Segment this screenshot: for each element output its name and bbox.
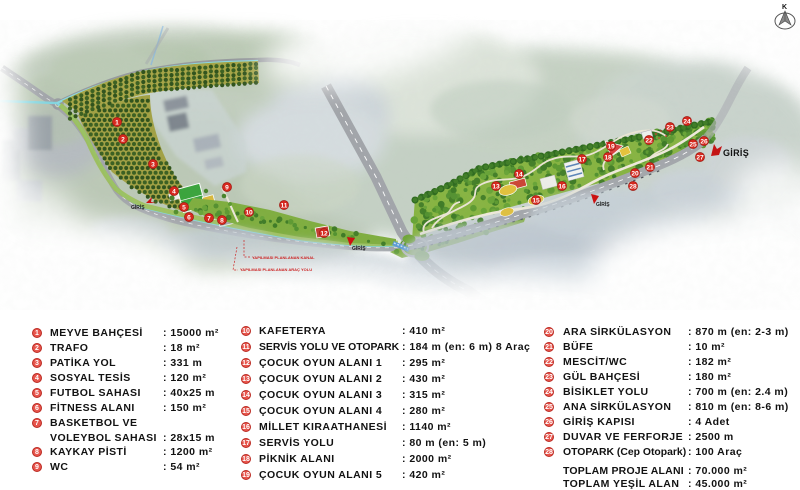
svg-text:28: 28: [629, 184, 637, 191]
svg-text:18: 18: [604, 155, 612, 162]
svg-text:15: 15: [532, 198, 540, 205]
svg-text:11: 11: [281, 203, 288, 210]
svg-text:8: 8: [220, 218, 224, 225]
svg-text:19: 19: [607, 144, 615, 151]
svg-text:10: 10: [245, 210, 253, 217]
svg-text:2: 2: [121, 137, 125, 144]
svg-text:13: 13: [492, 184, 500, 191]
svg-text:4: 4: [172, 189, 176, 196]
svg-text:3: 3: [151, 162, 155, 169]
svg-text:14: 14: [515, 172, 523, 179]
svg-text:6: 6: [187, 215, 191, 222]
svg-text:GİRİŞ: GİRİŞ: [131, 204, 145, 211]
svg-text:22: 22: [645, 138, 653, 145]
svg-text:17: 17: [578, 157, 586, 164]
svg-text:GİRİŞ: GİRİŞ: [596, 201, 610, 208]
svg-text:27: 27: [696, 155, 704, 162]
svg-text:21: 21: [646, 165, 654, 172]
svg-text:23: 23: [666, 125, 674, 132]
svg-text:GİRİŞ: GİRİŞ: [723, 148, 749, 158]
svg-text:25: 25: [689, 142, 697, 149]
svg-text:16: 16: [558, 184, 566, 191]
svg-text:24: 24: [683, 119, 691, 126]
svg-text:YAPILMASI PLANLANAN ARAÇ YOLU: YAPILMASI PLANLANAN ARAÇ YOLU: [240, 267, 312, 272]
svg-text:GİRİŞ: GİRİŞ: [352, 245, 366, 252]
svg-text:K: K: [782, 4, 787, 11]
svg-text:7: 7: [207, 216, 211, 223]
svg-text:12: 12: [320, 231, 328, 238]
svg-text:5: 5: [182, 205, 186, 212]
svg-text:YAPILMASI PLANLANAN KANAL: YAPILMASI PLANLANAN KANAL: [252, 255, 315, 260]
svg-text:1: 1: [115, 120, 119, 127]
svg-text:26: 26: [700, 139, 708, 146]
svg-text:9: 9: [225, 185, 229, 192]
svg-text:20: 20: [631, 171, 639, 178]
